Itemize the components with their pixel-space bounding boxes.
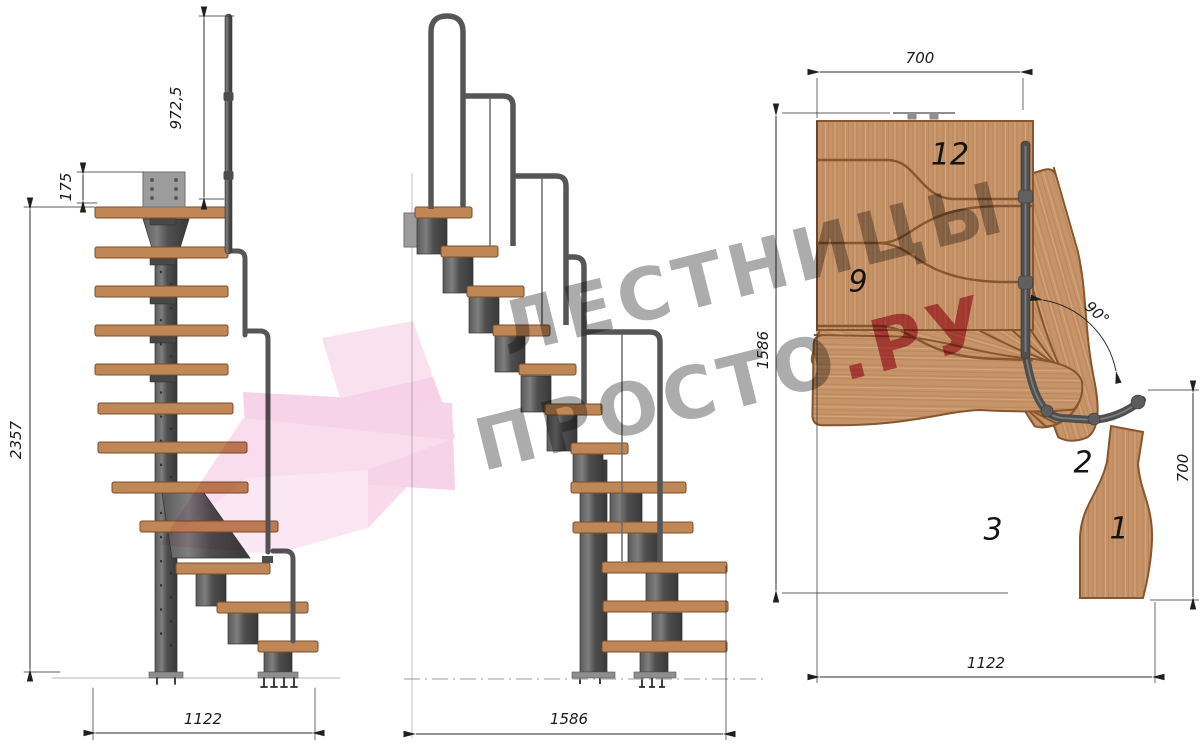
- dim-plan-left-depth: 1586: [754, 331, 772, 369]
- support-baseplate: [634, 672, 676, 678]
- wall-bracket: [893, 113, 955, 119]
- step-module: [228, 613, 258, 644]
- rail-knob: [1088, 413, 1100, 425]
- anchor-bolts: [157, 678, 297, 687]
- wall-mount-plate: [143, 172, 185, 207]
- dim-plan-bottom-width: 1122: [967, 654, 1005, 672]
- dim-front-width: 1586: [550, 710, 588, 728]
- central-column: [155, 256, 177, 672]
- rail-joint: [1019, 276, 1033, 289]
- rail-knob: [1131, 395, 1145, 409]
- step-module: [196, 574, 226, 606]
- bottom-support: [264, 652, 292, 672]
- plan-view: [776, 72, 1199, 683]
- column-baseplate: [572, 672, 615, 678]
- dim-plate-height: 175: [57, 173, 75, 202]
- dim-side-width: 1122: [184, 710, 222, 728]
- dim-total-height: 2357: [7, 421, 25, 459]
- handrail-post: [225, 14, 232, 254]
- dim-plan-right-depth: 700: [1174, 454, 1192, 483]
- step-label-9: 9: [848, 265, 867, 300]
- rail-joint: [224, 92, 234, 101]
- dim-plan-top-width: 700: [906, 49, 935, 67]
- column-baseplate: [149, 672, 183, 678]
- rail-foot: [262, 556, 273, 563]
- step-label-2: 2: [1073, 446, 1092, 481]
- dim-rail-height: 972,5: [167, 87, 185, 130]
- rail-knob: [1041, 405, 1053, 417]
- staircase-blueprint: ЛЕСТНИЦЫ ПРОСТО.РУ 972,5 175 2357 1122 1…: [0, 0, 1200, 750]
- step-label-12: 12: [931, 138, 969, 173]
- step-label-3: 3: [983, 513, 1002, 548]
- rail-joint: [1019, 190, 1033, 203]
- front-elevation-view: [404, 16, 766, 740]
- rail-joint: [224, 171, 234, 180]
- step-label-1: 1: [1109, 512, 1128, 547]
